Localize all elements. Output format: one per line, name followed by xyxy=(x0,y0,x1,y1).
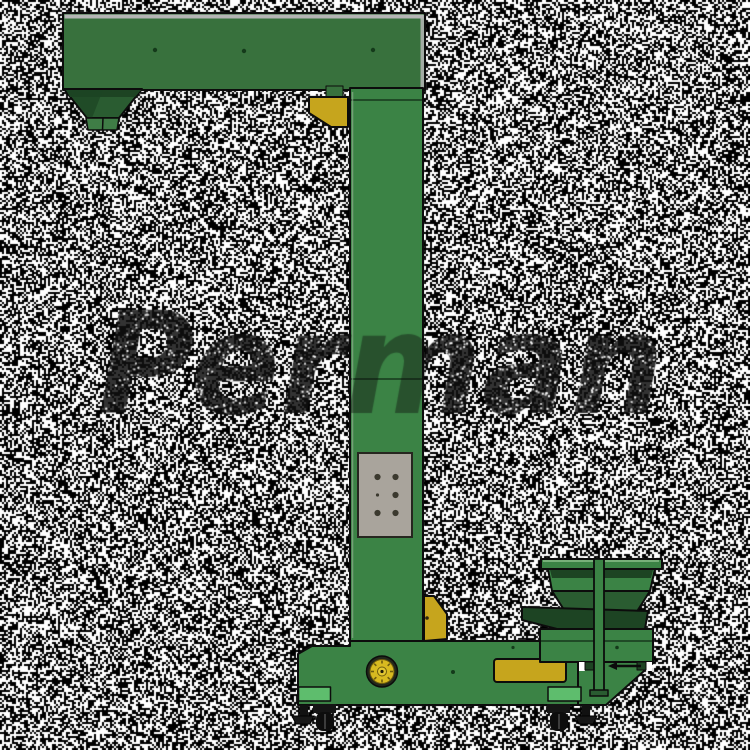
watermark-text-layer xyxy=(0,0,750,750)
product-image-z-bucket-elevator: Perman xyxy=(0,0,750,750)
